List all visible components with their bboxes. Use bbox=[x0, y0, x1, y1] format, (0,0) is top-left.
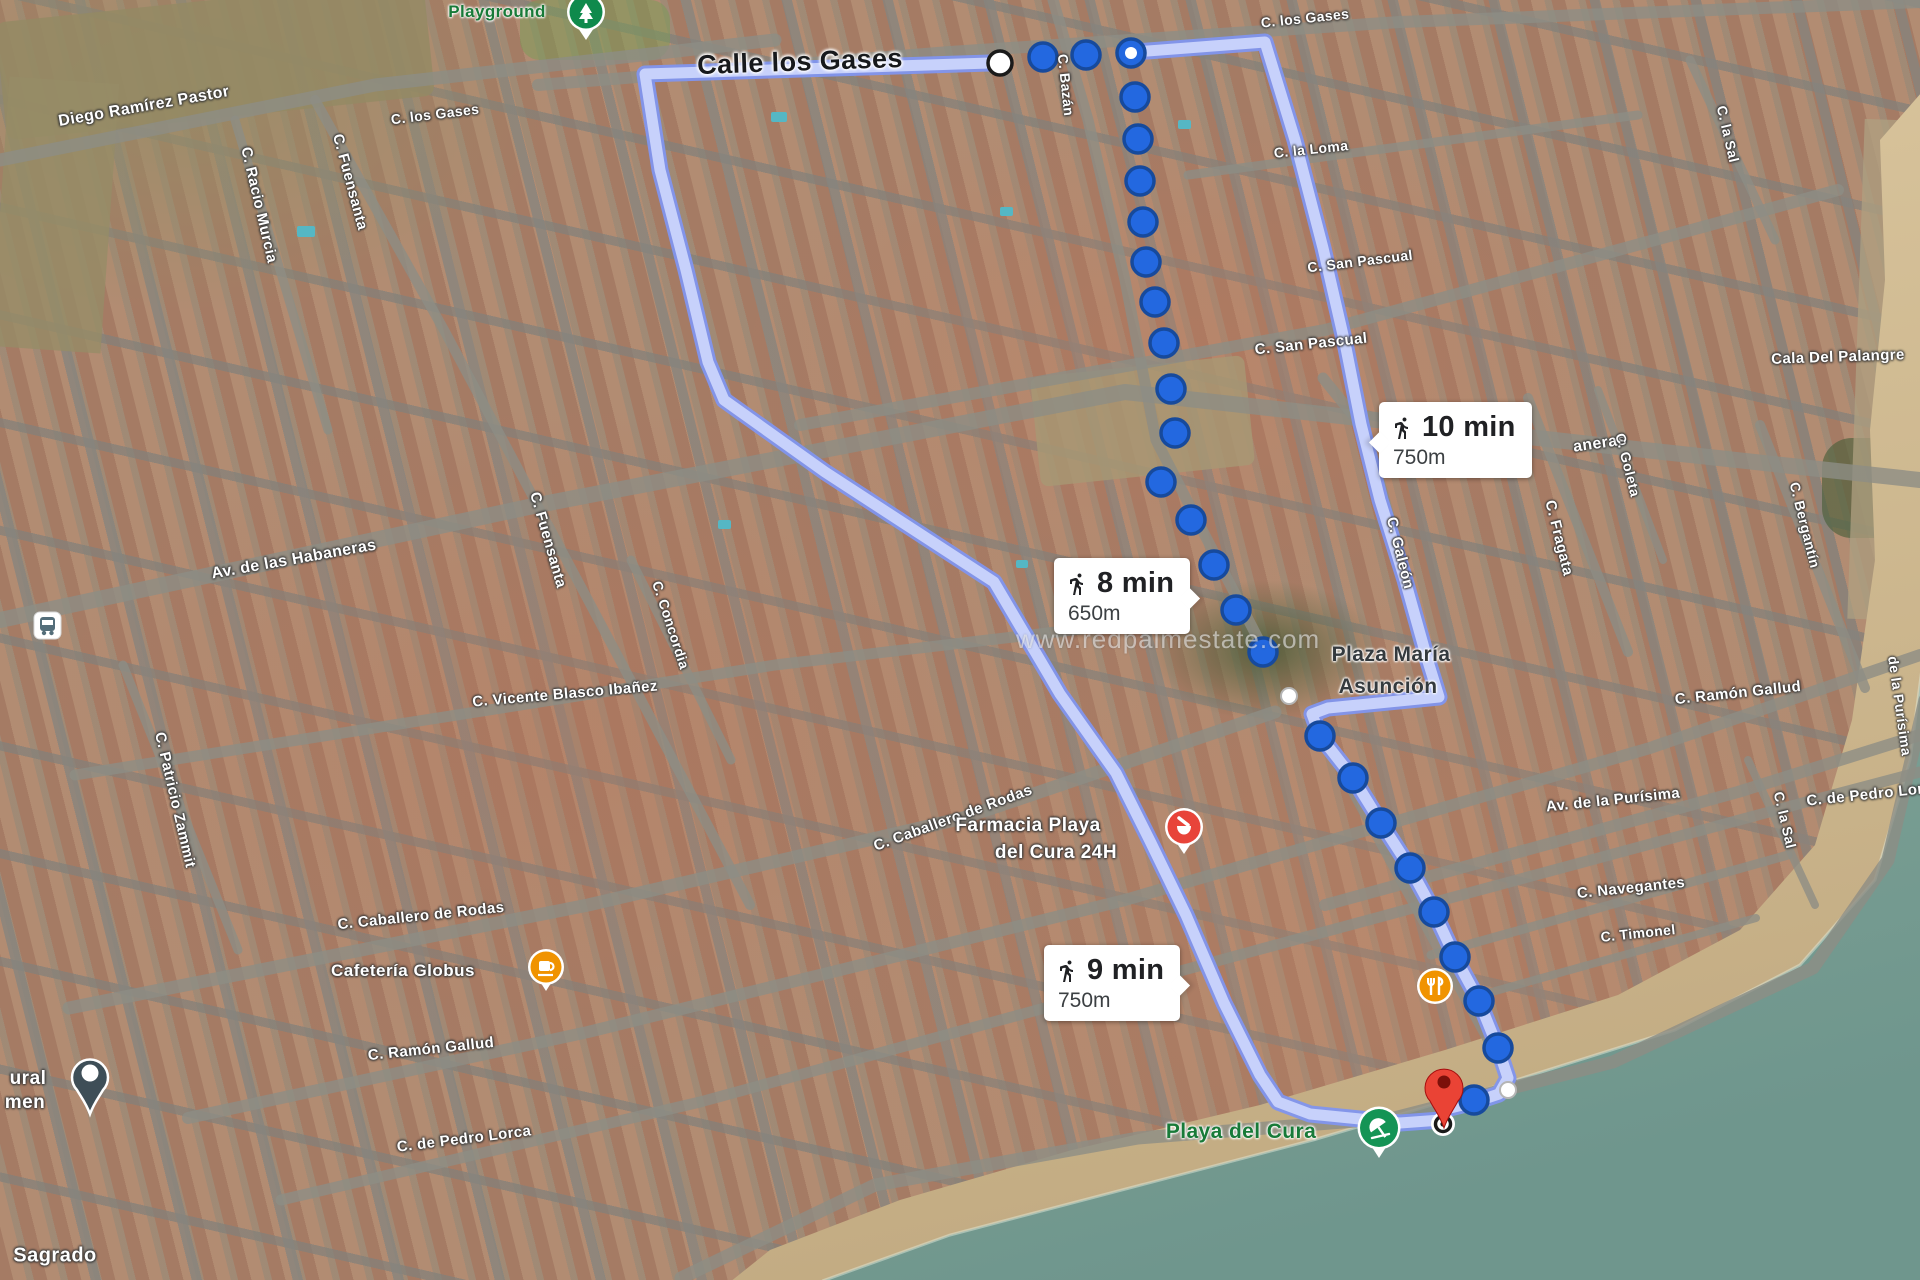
street-label-ramon-gallud: C. Ramón Gallud bbox=[367, 1034, 495, 1064]
street-label-caballero-de-rodas: C. Caballero de Rodas bbox=[337, 899, 505, 933]
walking-icon bbox=[1066, 571, 1090, 597]
poi-label-playground[interactable]: Playground bbox=[448, 2, 546, 22]
street-label-concordia: C. Concordia bbox=[649, 579, 693, 671]
poi-label-cafeteria-globus[interactable]: Cafetería Globus bbox=[331, 961, 475, 981]
street-label-san-pascual-east: C. San Pascual bbox=[1306, 247, 1413, 276]
street-label-la-sal-south: C. la Sal bbox=[1771, 790, 1800, 850]
poi-label-fragment-men: men bbox=[5, 1092, 46, 1114]
route-time: 10 min bbox=[1422, 411, 1516, 444]
street-label-los-gases-west: C. los Gases bbox=[390, 101, 480, 128]
street-label-la-sal-north: C. la Sal bbox=[1714, 104, 1743, 164]
street-label-los-gases-east: C. los Gases bbox=[1260, 5, 1350, 30]
street-label-galeon: C. Galeón bbox=[1383, 515, 1417, 591]
poi-label-cala-del-palangre[interactable]: Cala Del Palangre bbox=[1771, 346, 1905, 368]
street-label-ramon-gallud-east: C. Ramón Gallud bbox=[1674, 678, 1802, 708]
route-distance: 750m bbox=[1393, 446, 1516, 470]
walking-icon bbox=[1056, 958, 1080, 984]
route-badge-10min[interactable]: 10 min 750m bbox=[1379, 402, 1532, 478]
route-badge-8min[interactable]: 8 min 650m bbox=[1054, 558, 1190, 634]
street-label-navegantes: C. Navegantes bbox=[1576, 874, 1686, 902]
street-label-goleta: C. Goleta bbox=[1612, 431, 1643, 498]
street-label-la-loma: C. la Loma bbox=[1273, 137, 1349, 161]
route-badge-9min[interactable]: 9 min 750m bbox=[1044, 945, 1180, 1021]
street-label-purisima-vertical: de la Purísima bbox=[1885, 655, 1915, 757]
street-label-fragata: C. Fragata bbox=[1541, 498, 1576, 577]
poi-label-fragment-ural: ural bbox=[10, 1068, 47, 1090]
street-label-habaneras: Av. de las Habaneras bbox=[210, 537, 378, 584]
route-time: 9 min bbox=[1087, 954, 1164, 987]
map-canvas[interactable]: Diego Ramírez PastorC. Racio MurciaC. Fu… bbox=[0, 0, 1920, 1280]
street-label-patricio-zammit: C. Patricio Zammit bbox=[151, 730, 199, 869]
poi-label-plaza-maria-line2[interactable]: Asunción bbox=[1339, 675, 1438, 699]
street-label-timonel: C. Timonel bbox=[1600, 921, 1677, 945]
poi-label-plaza-maria-line1[interactable]: Plaza María bbox=[1332, 643, 1451, 667]
street-label-bergantin: C. Bergantín bbox=[1787, 480, 1824, 569]
street-label-pedro-lorca: C. de Pedro Lorca bbox=[396, 1122, 532, 1155]
street-label-av-purisima: Av. de la Purísima bbox=[1545, 785, 1681, 816]
street-label-fuensanta-mid: C. Fuensanta bbox=[526, 490, 570, 590]
street-label-fuensanta-north: C. Fuensanta bbox=[329, 132, 371, 232]
street-labels-layer: Diego Ramírez PastorC. Racio MurciaC. Fu… bbox=[0, 0, 1920, 1280]
route-distance: 750m bbox=[1058, 989, 1164, 1013]
poi-label-farmacia-line2[interactable]: del Cura 24H bbox=[995, 842, 1117, 864]
poi-label-playa-del-cura[interactable]: Playa del Cura bbox=[1166, 1120, 1316, 1144]
route-time: 8 min bbox=[1097, 567, 1174, 600]
poi-label-farmacia-line1[interactable]: Farmacia Playa bbox=[955, 815, 1100, 837]
poi-label-sagrado[interactable]: Sagrado bbox=[13, 1245, 97, 1268]
street-label-vicente-blasco-ibanez: C. Vicente Blasco Ibañez bbox=[472, 677, 659, 710]
street-label-pedro-lorca-east: C. de Pedro Lor bbox=[1806, 780, 1920, 809]
route-distance: 650m bbox=[1068, 602, 1174, 626]
street-label-racio-murcia: C. Racio Murcia bbox=[237, 145, 280, 264]
street-label-san-pascual: C. San Pascual bbox=[1254, 330, 1368, 359]
street-label-bazan: C. Bazán bbox=[1055, 53, 1077, 117]
street-label-diego-ramirez-pastor: Diego Ramírez Pastor bbox=[57, 83, 231, 131]
walking-icon bbox=[1391, 415, 1415, 441]
origin-label[interactable]: Calle los Gases bbox=[697, 43, 904, 81]
